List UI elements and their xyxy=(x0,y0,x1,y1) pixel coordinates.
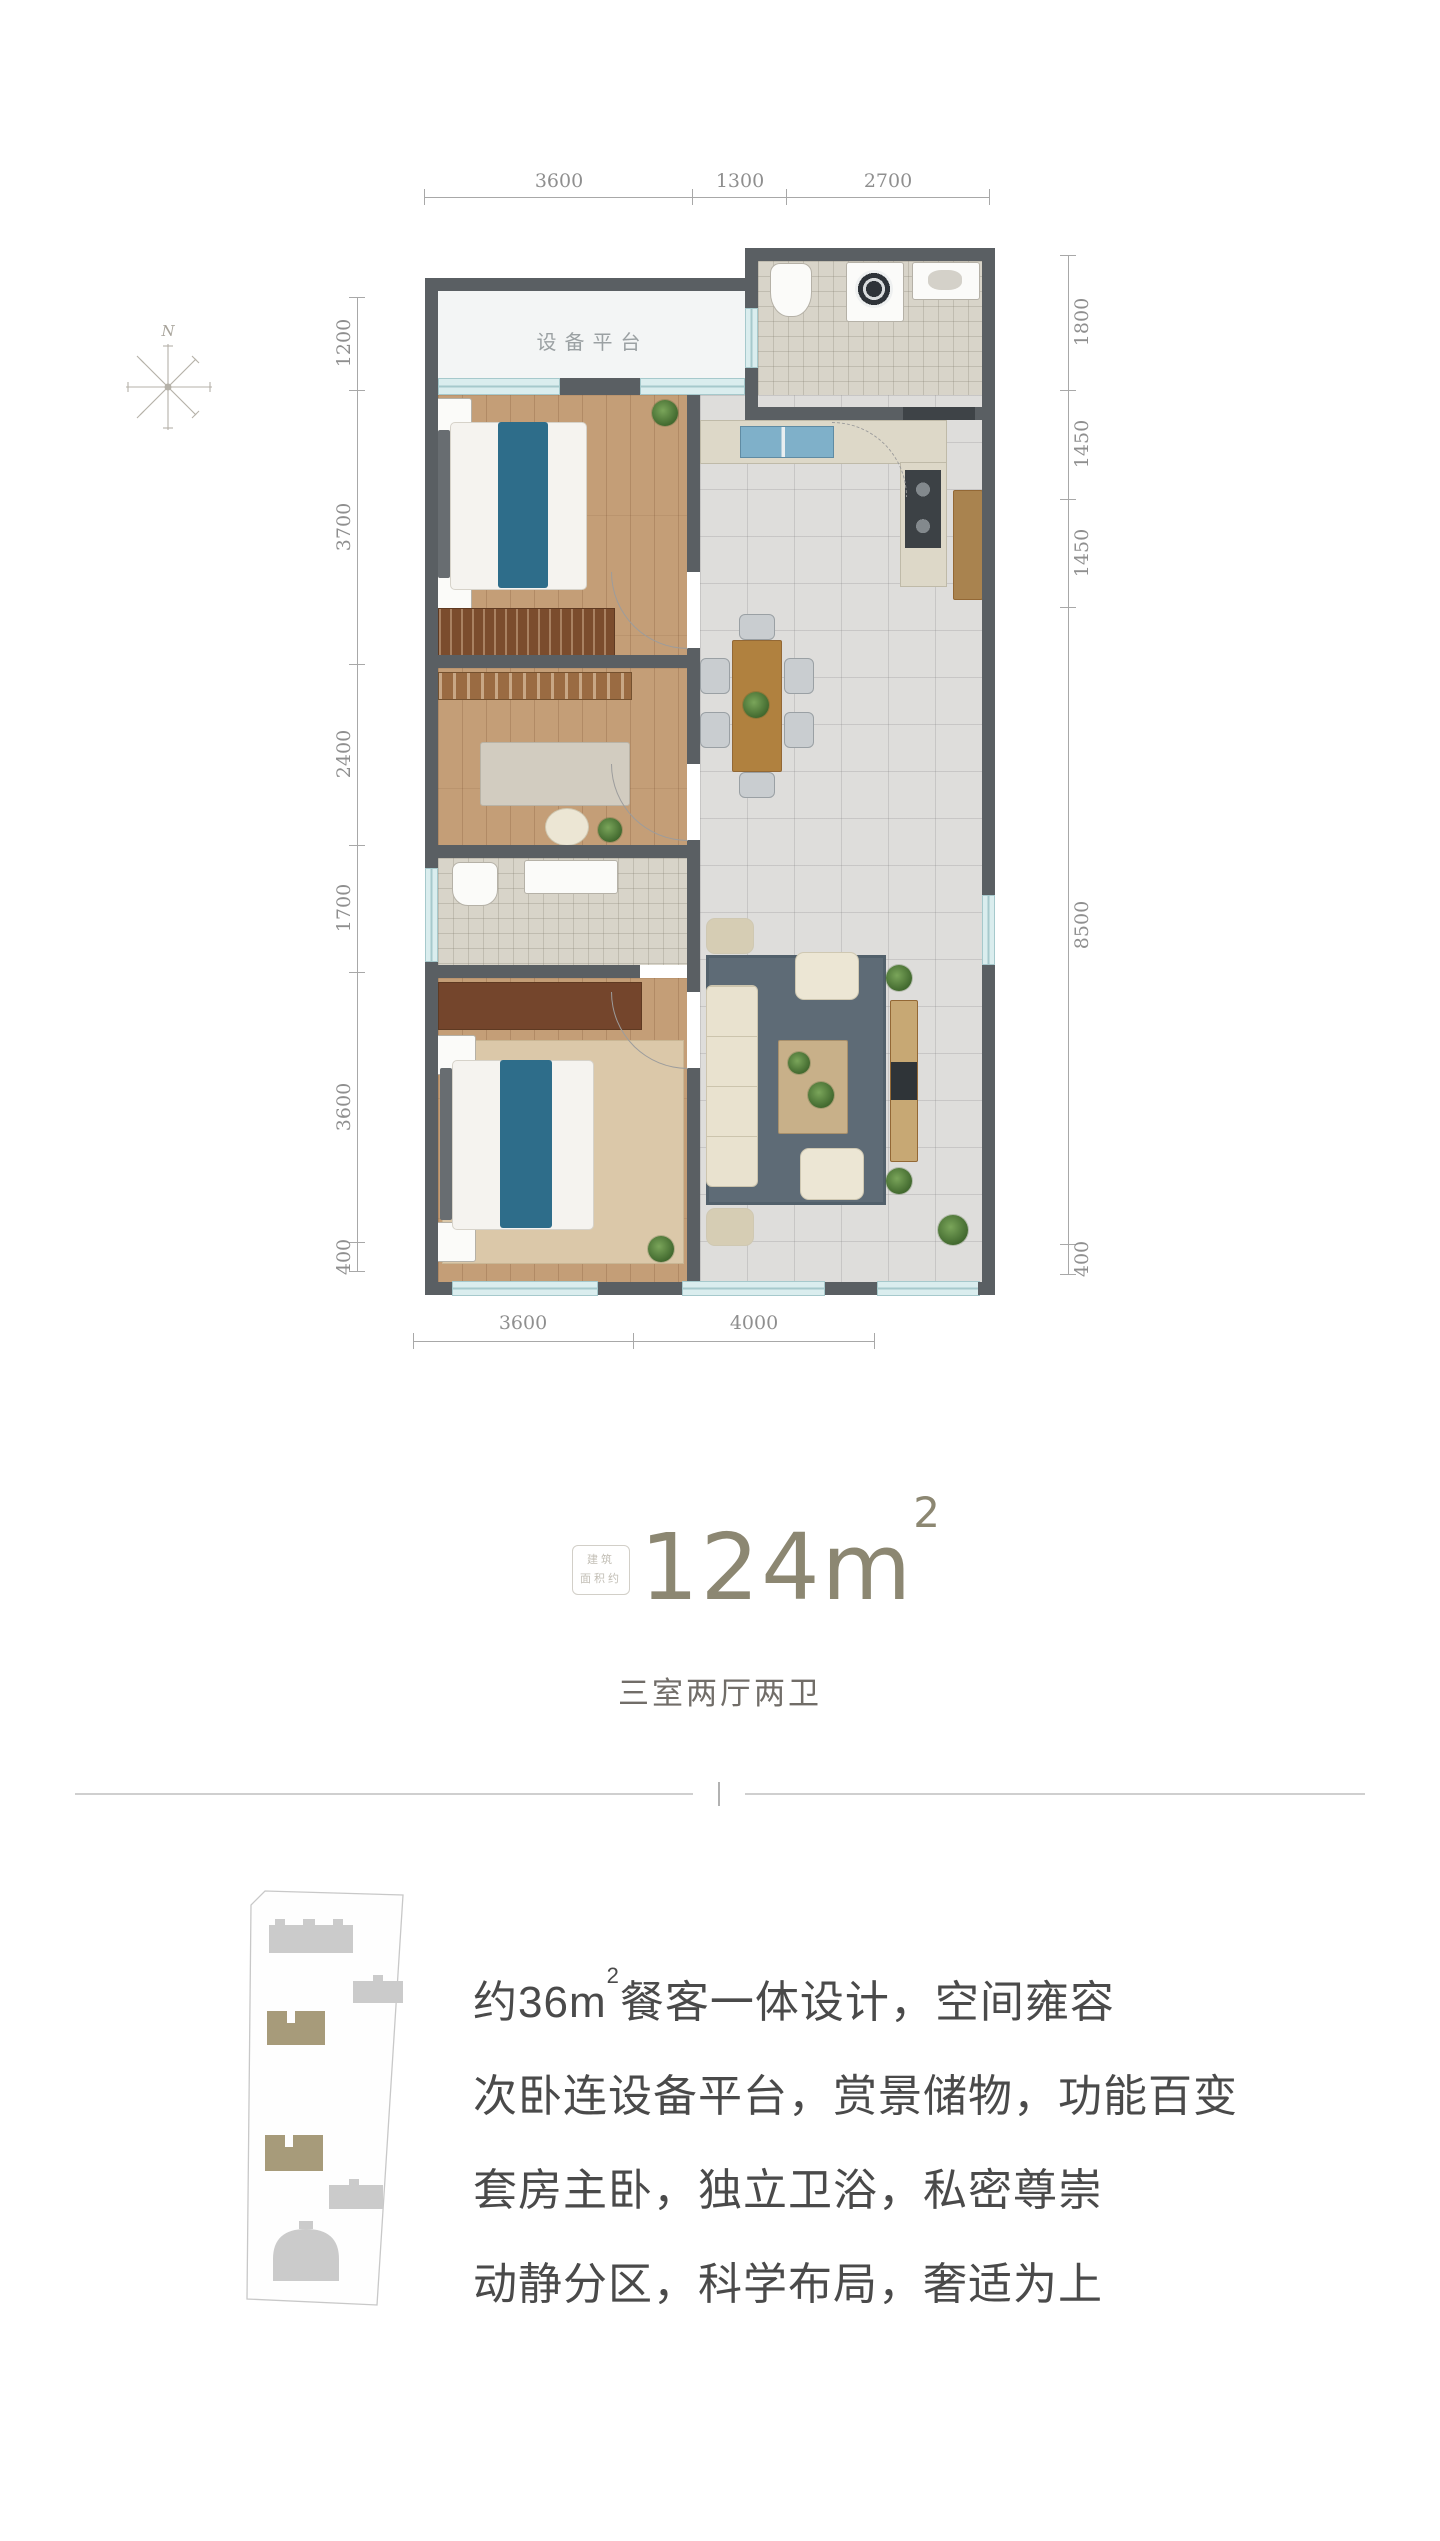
dimension-label: 2700 xyxy=(853,170,923,192)
plant xyxy=(938,1215,968,1245)
wall-segment xyxy=(687,840,700,992)
window xyxy=(452,1281,598,1296)
dining-chair xyxy=(739,772,775,798)
entry-door xyxy=(903,407,977,420)
wall-segment xyxy=(745,407,905,420)
dimension-tick xyxy=(633,1333,634,1349)
bed-headboard xyxy=(440,1068,452,1220)
hall-cabinet xyxy=(953,490,983,600)
dimension-label: 3700 xyxy=(333,497,355,557)
wall-segment xyxy=(825,1282,880,1295)
window xyxy=(682,1281,825,1296)
dimension-tick xyxy=(349,972,365,973)
divider-right xyxy=(745,1793,1365,1795)
plant xyxy=(886,965,912,991)
layout-type: 三室两厅两卫 xyxy=(0,1668,1440,1713)
wall-segment xyxy=(687,648,700,764)
dimension-line-bottom xyxy=(413,1341,875,1342)
feature-line: 动静分区，科学布局，奢适为上 xyxy=(473,2248,1103,2312)
dimension-label: 1200 xyxy=(333,313,355,373)
dimension-label: 1700 xyxy=(333,878,355,938)
wall-segment xyxy=(687,1068,700,1295)
feature-line: 套房主卧，独立卫浴，私密尊崇 xyxy=(473,2154,1103,2218)
dimension-tick xyxy=(349,297,365,298)
dimension-tick xyxy=(349,845,365,846)
dimension-tick xyxy=(989,189,990,205)
dining-chair xyxy=(700,712,730,748)
dimension-label: 3600 xyxy=(524,170,594,192)
wall-segment xyxy=(745,248,995,261)
cooktop xyxy=(905,470,941,548)
wall-segment xyxy=(425,1282,455,1295)
washing-machine-drum xyxy=(855,270,893,308)
wardrobe xyxy=(438,608,615,657)
dimension-tick xyxy=(1060,390,1076,391)
toilet xyxy=(452,862,498,906)
dimension-tick xyxy=(692,189,693,205)
plant xyxy=(652,400,678,426)
dimension-label: 1800 xyxy=(1071,292,1093,352)
plant xyxy=(648,1236,674,1262)
sofa xyxy=(706,985,758,1187)
dimension-label: 400 xyxy=(1071,1229,1093,1289)
area-value: 124m2 xyxy=(640,1522,940,1614)
dimension-label: 1300 xyxy=(705,170,775,192)
tv-cabinet xyxy=(890,1000,918,1162)
wall-segment xyxy=(982,420,995,895)
armchair xyxy=(795,952,859,1000)
compass-north-label: N xyxy=(160,322,175,340)
dimension-tick xyxy=(424,189,425,205)
dimension-tick xyxy=(874,1333,875,1349)
dimension-label: 4000 xyxy=(719,1312,789,1334)
dimension-label: 3600 xyxy=(333,1077,355,1137)
dimension-label: 1450 xyxy=(1071,414,1093,474)
window xyxy=(877,1281,980,1296)
side-table xyxy=(706,918,754,954)
dimension-line-right xyxy=(1068,255,1069,1275)
wall-segment xyxy=(975,407,995,420)
dining-chair xyxy=(784,712,814,748)
wall-segment xyxy=(982,965,995,1295)
wall-segment xyxy=(745,248,758,308)
dimension-line-top xyxy=(425,197,990,198)
plant xyxy=(886,1168,912,1194)
wall-segment xyxy=(598,1282,683,1295)
wall-segment xyxy=(438,845,687,858)
dimension-label: 1450 xyxy=(1071,523,1093,583)
plant xyxy=(808,1082,834,1108)
wall-segment xyxy=(425,278,758,291)
dimension-tick xyxy=(1060,255,1076,256)
wall-segment xyxy=(982,248,995,420)
window xyxy=(982,895,995,965)
bed-blanket xyxy=(500,1060,552,1228)
toilet xyxy=(770,263,812,317)
floorplan-page: N xyxy=(0,0,1440,2541)
wall-segment xyxy=(425,278,438,395)
dimension-label: 3600 xyxy=(488,1312,558,1334)
dimension-tick xyxy=(349,390,365,391)
dimension-tick xyxy=(1060,499,1076,500)
dimension-label: 2400 xyxy=(333,724,355,784)
window xyxy=(640,378,745,395)
dining-chair xyxy=(784,658,814,694)
dimension-label: 8500 xyxy=(1071,895,1093,955)
feature-line: 次卧连设备平台，赏景储物，功能百变 xyxy=(473,2060,1238,2124)
bookshelf xyxy=(438,672,632,700)
dimension-tick xyxy=(349,664,365,665)
area-stamp: 建筑 面积约 xyxy=(572,1545,630,1595)
siteplan-sketch xyxy=(225,1885,415,2315)
wall-segment xyxy=(687,395,700,572)
dimension-tick xyxy=(786,189,787,205)
dining-chair xyxy=(739,614,775,640)
wall-segment xyxy=(438,965,640,978)
wall-segment xyxy=(560,378,640,395)
side-table xyxy=(706,1208,754,1246)
divider-left xyxy=(75,1793,693,1795)
bed-blanket xyxy=(498,422,548,588)
window xyxy=(425,868,438,962)
area-stamp-line1: 建筑 xyxy=(587,1551,615,1570)
plant xyxy=(598,818,622,842)
room-label-equipment-platform: 设备平台 xyxy=(505,326,680,355)
plant xyxy=(743,692,769,718)
bed-headboard xyxy=(438,430,450,578)
armchair xyxy=(800,1148,864,1200)
dimension-tick xyxy=(1060,607,1076,608)
dimension-line-left xyxy=(357,297,358,1272)
kitchen-sink xyxy=(740,426,834,458)
bathroom-sink xyxy=(524,860,618,894)
wall-segment xyxy=(438,655,687,668)
dimension-label: 400 xyxy=(333,1227,355,1287)
compass-icon: N xyxy=(120,322,216,434)
dimension-tick xyxy=(413,1333,414,1349)
desk-chair xyxy=(545,808,589,846)
divider-tick xyxy=(718,1782,720,1806)
area-stamp-line2: 面积约 xyxy=(580,1570,622,1589)
feature-line: 约36m2餐客一体设计，空间雍容 xyxy=(473,1966,1115,2030)
desk xyxy=(480,742,630,806)
dining-chair xyxy=(700,658,730,694)
sink-basin xyxy=(928,270,962,290)
wall-segment xyxy=(425,395,438,868)
wall-segment xyxy=(425,962,438,1295)
window xyxy=(438,378,560,395)
plant xyxy=(788,1052,810,1074)
window xyxy=(745,308,758,368)
